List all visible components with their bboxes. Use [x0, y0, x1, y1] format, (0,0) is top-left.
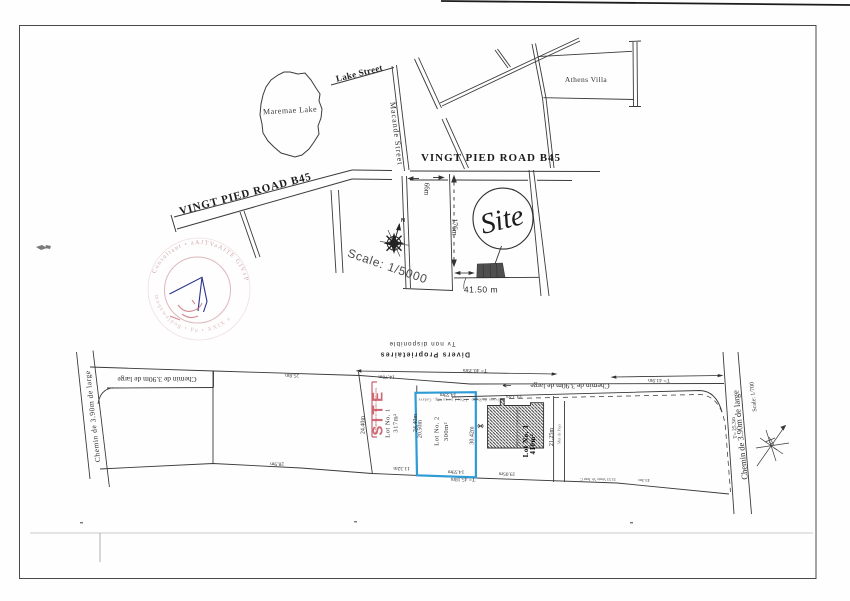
- svg-text:19.05m: 19.05m: [498, 471, 515, 477]
- svg-text:Mur de Pays: Mur de Pays: [557, 423, 562, 444]
- svg-text:14.59m: 14.59m: [439, 391, 456, 397]
- svg-text:N: N: [401, 218, 405, 224]
- svg-text:Batisse en construction: Batisse en construction: [514, 407, 519, 447]
- svg-text:Lot No. 1: Lot No. 1: [385, 408, 392, 438]
- svg-text:VINGT PIED ROAD B45: VINGT PIED ROAD B45: [421, 152, 561, 164]
- svg-text:20.50m: 20.50m: [418, 420, 424, 439]
- svg-text:21.25m: 21.25m: [549, 428, 555, 447]
- svg-text:28.9m: 28.9m: [269, 461, 284, 467]
- svg-text:Lot No. 2: Lot No. 2: [434, 416, 441, 446]
- svg-text:T= 45.18m: T= 45.18m: [450, 476, 475, 482]
- svg-text:317m²: 317m²: [393, 413, 400, 432]
- svg-text:14.70m: 14.70m: [377, 374, 394, 380]
- svg-text:11.32m: 11.32m: [393, 465, 410, 471]
- svg-text:176m: 176m: [451, 218, 460, 235]
- svg-text:24.40m: 24.40m: [361, 416, 367, 435]
- svg-text:41.50 m: 41.50 m: [464, 285, 498, 295]
- svg-text:Riviere du Remp . J Vne J p .: Riviere du Remp . J Vne J p . au wlg . C…: [418, 397, 502, 401]
- svg-text:25.8m: 25.8m: [284, 372, 299, 378]
- svg-text:Athens Villa: Athens Villa: [565, 75, 608, 84]
- svg-text:33.53 Vente Ve Jean C: 33.53 Vente Ve Jean C: [580, 477, 616, 482]
- svg-text:T= 41.9m: T= 41.9m: [647, 377, 669, 383]
- svg-text:Divers Proprietaires: Divers Proprietaires: [379, 351, 470, 358]
- svg-text:Chemin de 3.90m de large: Chemin de 3.90m de large: [117, 375, 197, 384]
- svg-text:410m²: 410m²: [530, 434, 537, 455]
- svg-text:T= 40.39m: T= 40.39m: [462, 367, 487, 373]
- svg-text:300m²: 300m²: [443, 422, 450, 441]
- svg-text:14.59m: 14.59m: [447, 469, 464, 475]
- svg-text:Tv non disponible: Tv non disponible: [388, 340, 455, 347]
- svg-text:Chemin de 3.90m de large: Chemin de 3.90m de large: [530, 382, 610, 391]
- svg-text:45.3m: 45.3m: [638, 478, 650, 483]
- svg-text:66m: 66m: [423, 183, 431, 196]
- svg-text:30.42m: 30.42m: [470, 426, 476, 445]
